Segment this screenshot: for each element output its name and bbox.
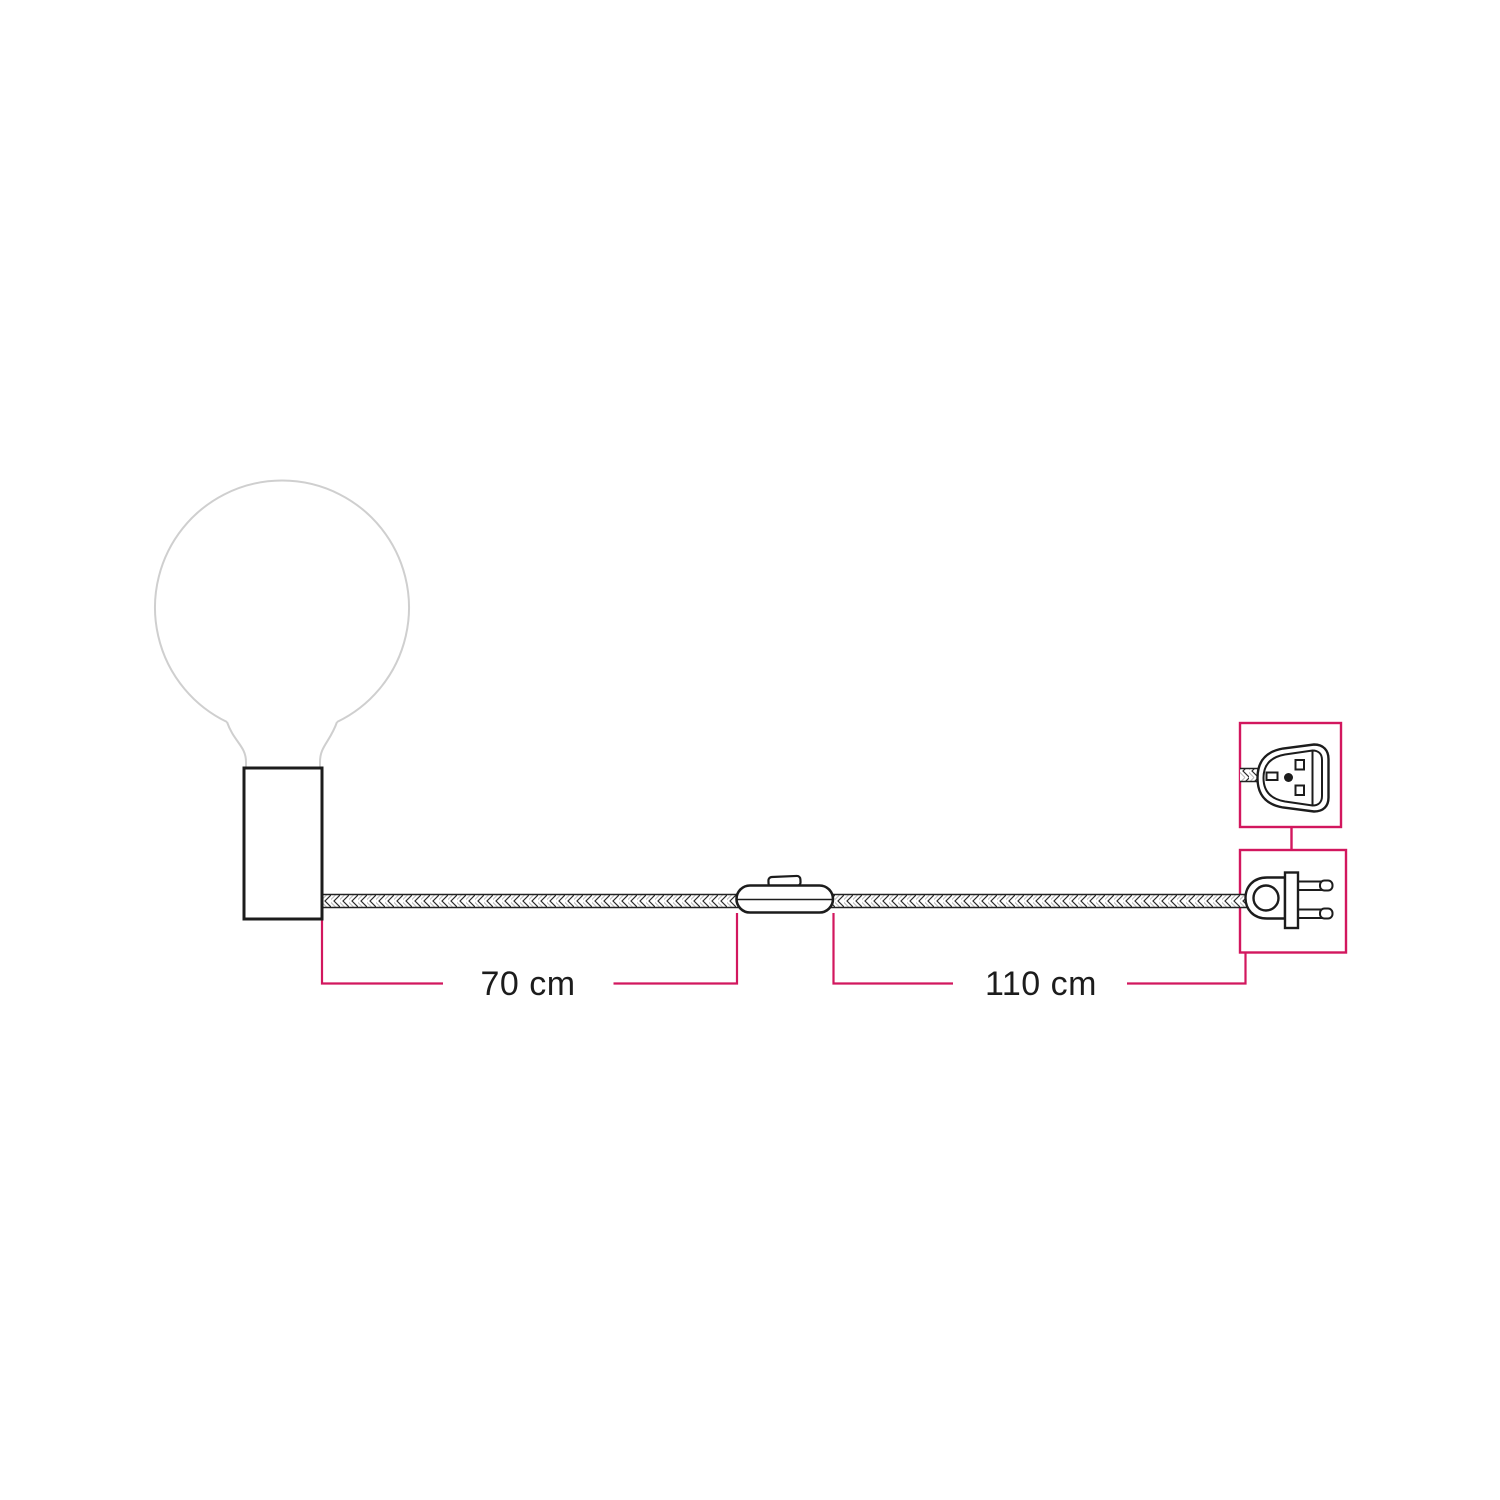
inline-switch-icon <box>737 876 834 913</box>
dimension-label-110cm: 110 cm <box>979 967 1103 1001</box>
plug-center-dot <box>1284 773 1293 782</box>
cable-stub-icon <box>1240 769 1259 782</box>
plug-cord-slot <box>1267 773 1278 781</box>
plug-pin-hole-bottom <box>1296 786 1305 796</box>
two-pin-plug-side-icon <box>1246 873 1333 929</box>
plug-pin-hole-top <box>1296 760 1305 770</box>
dimension-label-70cm: 70 cm <box>474 967 581 1001</box>
light-bulb-globe-icon <box>155 481 409 769</box>
dimension-line-110cm-right <box>1127 953 1246 984</box>
plug-pin-bottom <box>1298 910 1321 919</box>
plug-face-plate <box>1285 873 1298 929</box>
diagram-canvas: 70 cm 110 cm <box>0 0 1500 1500</box>
plug-body-ring <box>1254 886 1279 911</box>
two-pin-plug-front-icon <box>1258 745 1329 812</box>
lamp-holder-icon <box>244 768 322 919</box>
dimension-line-70cm-left <box>322 919 443 984</box>
dimension-line-110cm-left <box>834 913 954 984</box>
lamp-dimension-drawing <box>0 0 1500 1500</box>
dimension-line-70cm-right <box>614 913 738 984</box>
plug-pin-top <box>1298 882 1321 891</box>
dimension-lines <box>322 913 1246 984</box>
